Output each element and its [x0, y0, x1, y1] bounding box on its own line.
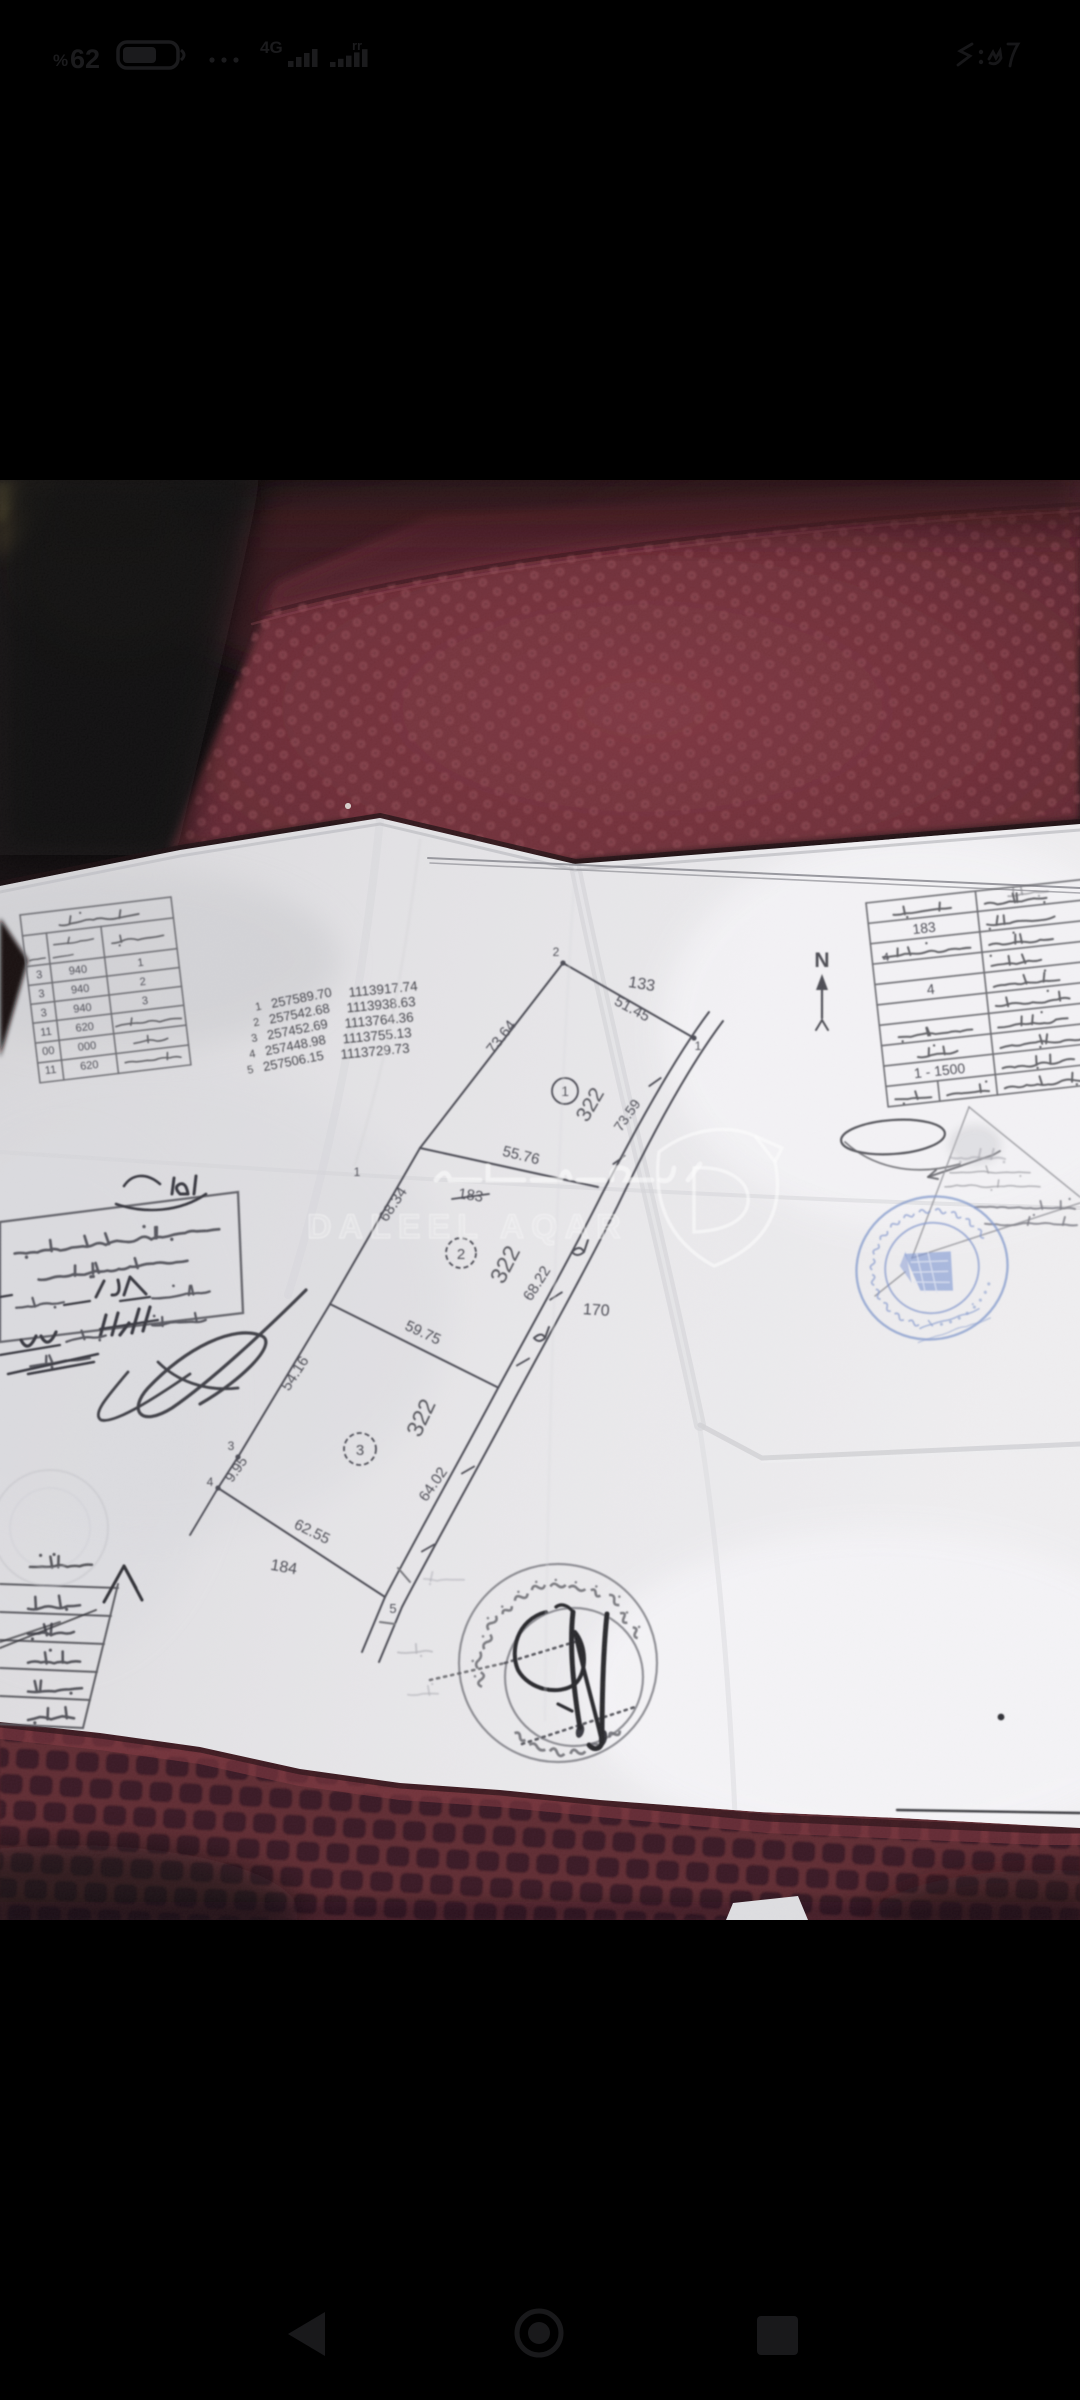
- svg-text:%: %: [53, 51, 68, 70]
- svg-text:rr: rr: [352, 38, 362, 53]
- svg-text:62: 62: [70, 44, 100, 74]
- svg-text:4G: 4G: [260, 38, 283, 57]
